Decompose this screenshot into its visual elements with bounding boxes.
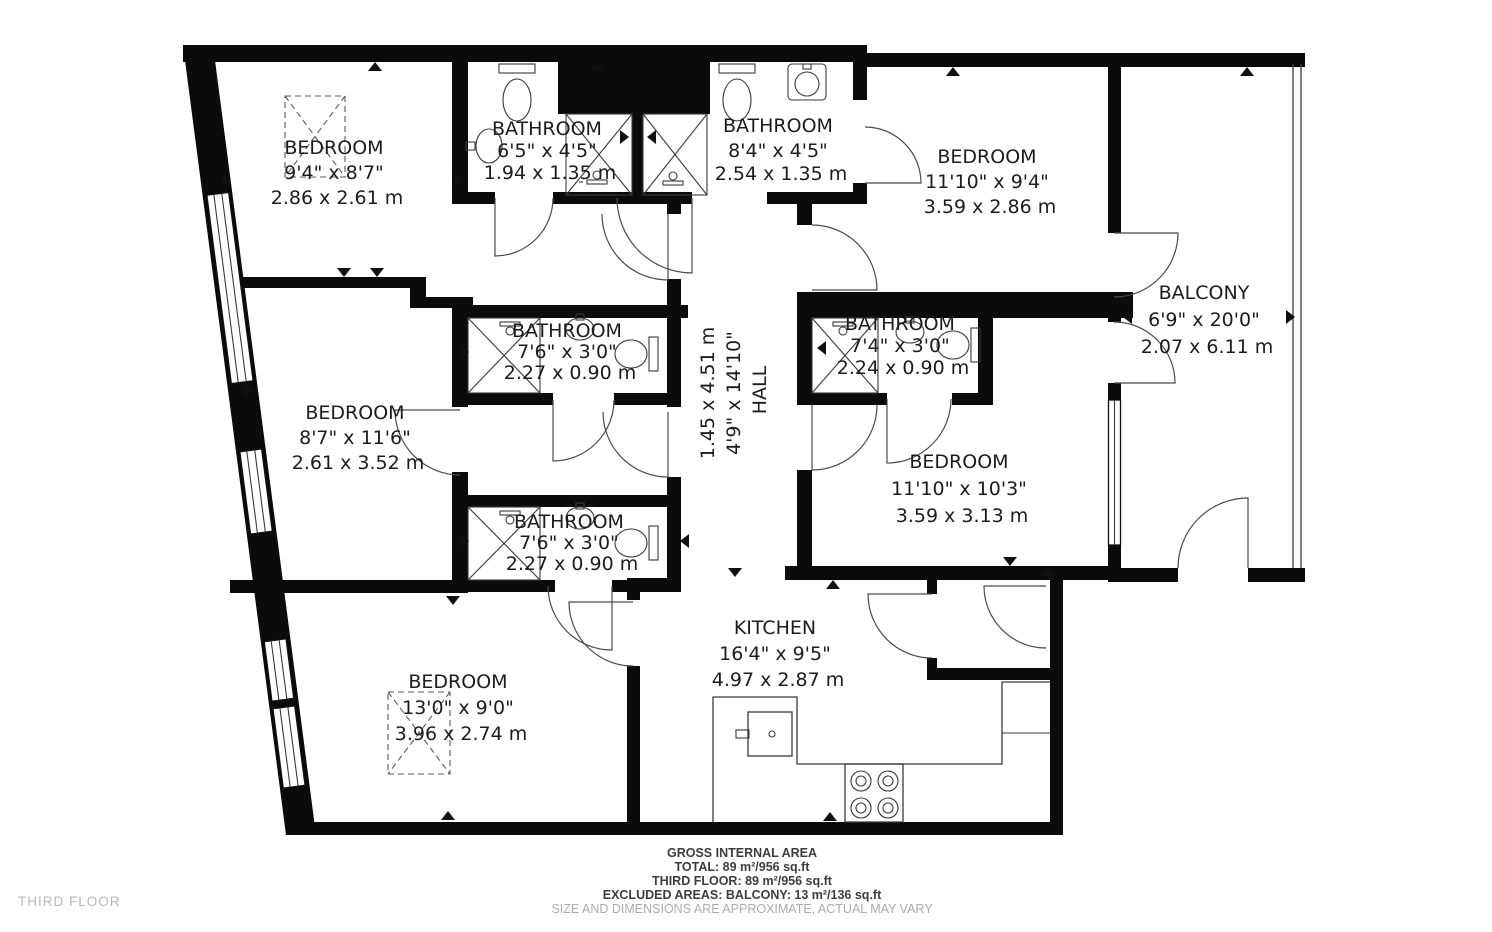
- label-bathroom-top-2: BATHROOM 8'4" x 4'5" 2.54 x 1.35 m: [715, 115, 847, 185]
- label-bathroom-middle-bottom: BATHROOM 7'6" x 3'0" 2.27 x 0.90 m: [506, 511, 638, 575]
- label-bathroom-top-1: BATHROOM 6'5" x 4'5" 1.94 x 1.35 m: [484, 118, 616, 184]
- window-left-2: [240, 449, 273, 534]
- door-vestibule-2: [984, 586, 1046, 648]
- footer-disclaimer: SIZE AND DIMENSIONS ARE APPROXIMATE, ACT…: [551, 902, 933, 916]
- toilet-bathroom-top-2: [719, 64, 755, 121]
- label-kitchen: KITCHEN 16'4" x 9'5" 4.97 x 2.87 m: [712, 617, 844, 691]
- door-vestibule-1: [868, 594, 932, 658]
- floor-label: THIRD FLOOR: [18, 894, 121, 909]
- label-bedroom-middle-right: BEDROOM 11'10" x 10'3" 3.59 x 3.13 m: [891, 451, 1033, 527]
- label-bedroom-bottom-left: BEDROOM 13'0" x 9'0" 3.96 x 2.74 m: [395, 671, 527, 745]
- footer: GROSS INTERNAL AREA TOTAL: 89 m²/956 sq.…: [551, 846, 933, 916]
- label-bathroom-right: BATHROOM 7'4" x 3'0" 2.24 x 0.90 m: [837, 313, 969, 379]
- footer-excluded: EXCLUDED AREAS: BALCONY: 13 m²/136 sq.ft: [603, 888, 882, 902]
- window-balcony: [1109, 400, 1121, 545]
- door-lobby-hall: [603, 412, 668, 477]
- toilet-bathroom-top-1: [499, 64, 535, 121]
- kitchen-sink: [736, 712, 792, 756]
- balcony-railing: [1293, 64, 1301, 568]
- door-bathroom-top-1: [495, 198, 553, 256]
- sink-bathroom-top-2: [788, 64, 826, 100]
- door-balcony-bottom: [1178, 498, 1248, 568]
- door-ensuite-bedroom-top-right: [865, 127, 921, 183]
- floor-plan-canvas: BEDROOM 9'4" x 8'7" 2.86 x 2.61 m BATHRO…: [0, 0, 1492, 932]
- door-bathroom-middle-bottom: [548, 586, 612, 650]
- stove: [845, 764, 903, 822]
- shower-bathroom-top-2: [643, 114, 707, 195]
- door-bedroom-top-right: [812, 225, 877, 290]
- footer-total: TOTAL: 89 m²/956 sq.ft: [675, 860, 811, 874]
- room-labels: BEDROOM 9'4" x 8'7" 2.86 x 2.61 m BATHRO…: [271, 115, 1273, 745]
- label-bedroom-middle-left: BEDROOM 8'7" x 11'6" 2.61 x 3.52 m: [292, 402, 424, 474]
- door-bedroom-bottom-left: [569, 602, 633, 666]
- door-bathroom-middle-top: [553, 400, 614, 461]
- label-balcony: BALCONY 6'9" x 20'0" 2.07 x 6.11 m: [1141, 282, 1273, 358]
- label-hall: 1.45 x 4.51 m 4'9" x 14'10" HALL: [697, 321, 771, 460]
- label-bedroom-top-left: BEDROOM 9'4" x 8'7" 2.86 x 2.61 m: [271, 137, 403, 209]
- floor-plan-page: BEDROOM 9'4" x 8'7" 2.86 x 2.61 m BATHRO…: [0, 0, 1492, 932]
- door-bedroom-middle-right: [812, 405, 877, 470]
- label-bathroom-middle-top: BATHROOM 7'6" x 3'0" 2.27 x 0.90 m: [504, 320, 636, 384]
- footer-title: GROSS INTERNAL AREA: [667, 846, 817, 860]
- footer-floor-area: THIRD FLOOR: 89 m²/956 sq.ft: [652, 874, 833, 888]
- label-bedroom-top-right: BEDROOM 11'10" x 9'4" 3.59 x 2.86 m: [924, 146, 1056, 218]
